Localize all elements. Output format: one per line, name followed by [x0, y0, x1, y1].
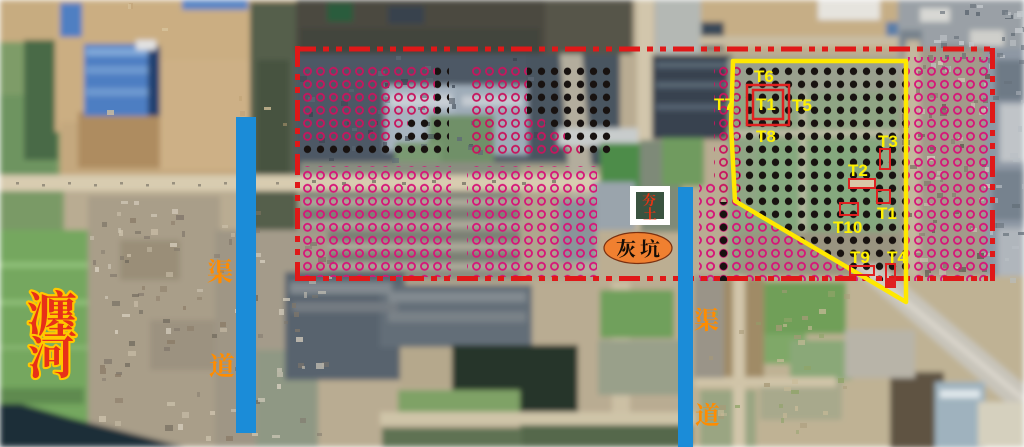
svg-text:T9: T9 — [850, 248, 870, 267]
svg-text:T1: T1 — [756, 95, 776, 114]
svg-text:T3: T3 — [878, 132, 898, 151]
svg-text:T8: T8 — [756, 127, 776, 146]
svg-text:T1: T1 — [877, 204, 897, 223]
svg-text:T6: T6 — [754, 67, 774, 86]
svg-text:T5: T5 — [792, 96, 812, 115]
svg-text:T2: T2 — [848, 161, 868, 180]
svg-text:T7: T7 — [714, 95, 734, 114]
svg-text:T4: T4 — [887, 248, 907, 267]
svg-text:T10: T10 — [833, 218, 862, 237]
